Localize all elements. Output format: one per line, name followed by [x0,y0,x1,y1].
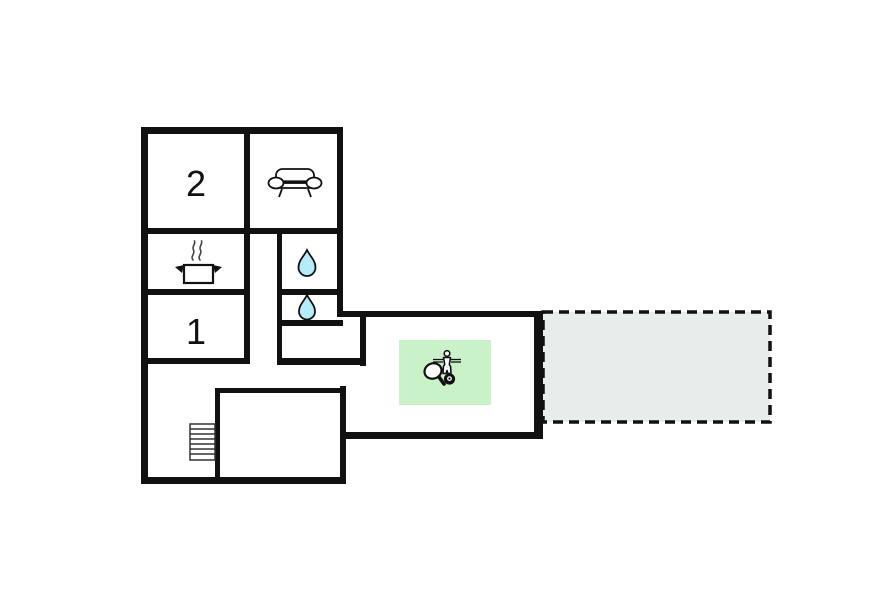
room-hall [282,326,360,358]
wall-right-upper [337,127,343,317]
bedroom-1-label: 1 [186,311,206,352]
wall-bedroom1-bottom [141,358,250,364]
wall-gameroom-top [337,311,543,317]
wall-top [141,127,343,134]
wall-hall-right [360,311,366,366]
water-drop-icon [299,295,315,320]
garage-void-room [218,391,343,480]
floor-plan-drawing: 2 1 [0,0,896,597]
floor-plan: 2 1 [0,0,896,597]
wall-center-divider [244,127,250,364]
wall-hall-bottom [277,358,366,365]
wall-gameroom-bottom [340,432,543,439]
wall-kitchen-bottom [141,289,250,295]
steam-icon [199,241,202,260]
bedroom-2-label: 2 [186,163,206,204]
steam-icon [192,241,195,260]
wall-bath-divider [277,289,343,295]
wall-below-bedrooms [141,228,343,234]
wall-bath-left [277,228,282,365]
sofa-icon [269,169,322,197]
wall-bath2-bottom [277,320,343,326]
wall-gameroom-right [534,311,543,439]
billiard-ball-icon [444,373,455,384]
wall-left [141,127,148,484]
stairs-icon [190,424,215,460]
cooking-pot-icon [175,241,222,283]
terrace-area [543,312,770,422]
water-drop-icon [299,250,316,276]
